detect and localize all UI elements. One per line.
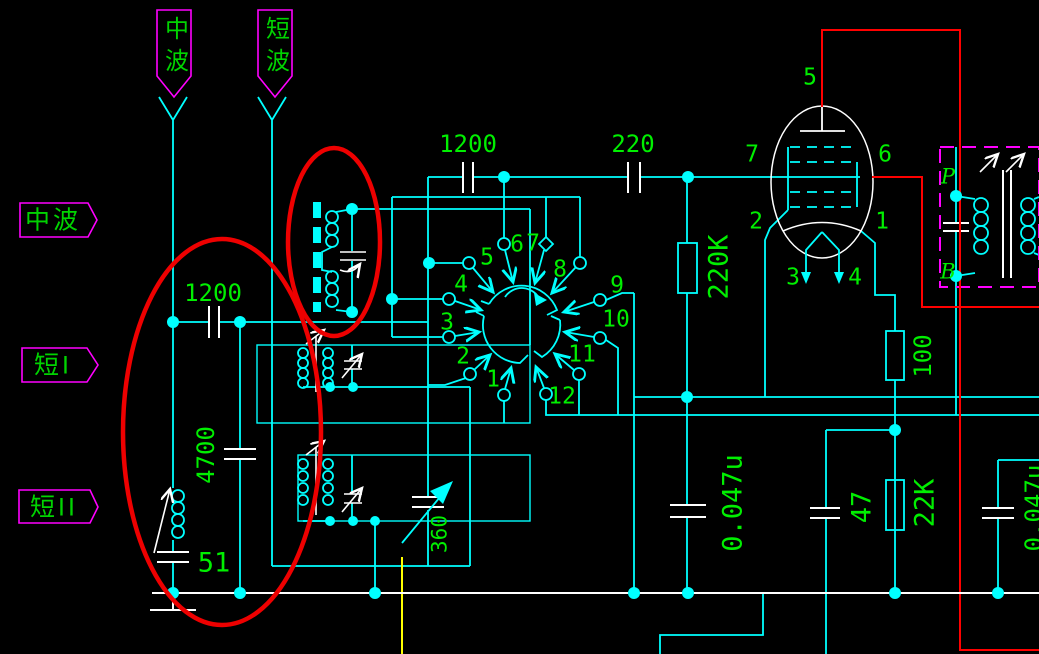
- junction-dots: [167, 171, 1004, 599]
- switch-contact-11: 11: [568, 344, 596, 367]
- vacuum-tube: [771, 106, 873, 284]
- bypass-cap-value: 0.047u: [720, 454, 747, 552]
- cathode-resistor-2-value: 22K: [912, 479, 939, 528]
- cathode-cap-value: 47: [849, 491, 876, 524]
- coupling-cap-1-value: 1200: [439, 132, 497, 156]
- tube-pin-3: 3: [786, 267, 800, 290]
- switch-contact-12: 12: [548, 386, 576, 409]
- switch-contact-8: 8: [553, 259, 567, 282]
- band-label-short-two: 短II: [30, 496, 78, 521]
- sw-antenna-coil: [317, 202, 366, 312]
- tube-pin-2: 2: [749, 211, 763, 234]
- transformer-terminal-b: B: [940, 262, 955, 283]
- band-switch: [443, 237, 606, 401]
- tube-pin-1: 1: [875, 211, 889, 234]
- cad-schematic-canvas: 中波 短波 中波 短I 短II 1200 4700 51 1200 220 22…: [0, 0, 1039, 654]
- band-label-short-one: 短I: [34, 354, 72, 379]
- osc-cap-value: 51: [198, 550, 231, 577]
- contact-7-diamond: [539, 237, 553, 251]
- banner-medium-wave-label: 中波: [157, 16, 192, 80]
- band-banners: [19, 10, 292, 523]
- transformer-terminal-p: P: [941, 167, 955, 188]
- contact-arrows: [455, 250, 594, 389]
- band-label-medium-wave: 中波: [25, 209, 81, 234]
- switch-contact-4: 4: [454, 274, 468, 297]
- tube-pin-4: 4: [848, 267, 862, 290]
- tube-pin-6: 6: [878, 144, 892, 167]
- schematic-drawing: [0, 0, 1039, 654]
- switch-contact-3: 3: [440, 312, 454, 335]
- tube-pin-5: 5: [803, 67, 817, 90]
- ground-bus: [150, 593, 1039, 610]
- tuning-cap-value: 360: [430, 515, 451, 553]
- switch-contact-1: 1: [486, 369, 500, 392]
- mw-osc-coil: [154, 489, 184, 553]
- switch-contact-5: 5: [480, 247, 494, 270]
- switch-contact-2: 2: [456, 346, 470, 369]
- padder-cap-value: 4700: [194, 426, 218, 484]
- switch-contact-9: 9: [610, 275, 624, 298]
- right-edge-cap-value: 0.047u: [1022, 465, 1039, 552]
- rotor-arcs: [476, 286, 560, 363]
- banner-short-wave-label: 短波: [258, 16, 293, 80]
- switch-contact-10: 10: [602, 309, 630, 332]
- antenna-cap-value: 1200: [184, 281, 242, 305]
- switch-contact-7: 7: [526, 233, 540, 256]
- grid-resistor-value: 220K: [706, 234, 733, 299]
- coupling-cap-2-value: 220: [611, 132, 654, 156]
- cathode-resistor-value: 100: [911, 334, 935, 377]
- tube-pin-7: 7: [745, 144, 759, 167]
- switch-contact-6: 6: [510, 234, 524, 257]
